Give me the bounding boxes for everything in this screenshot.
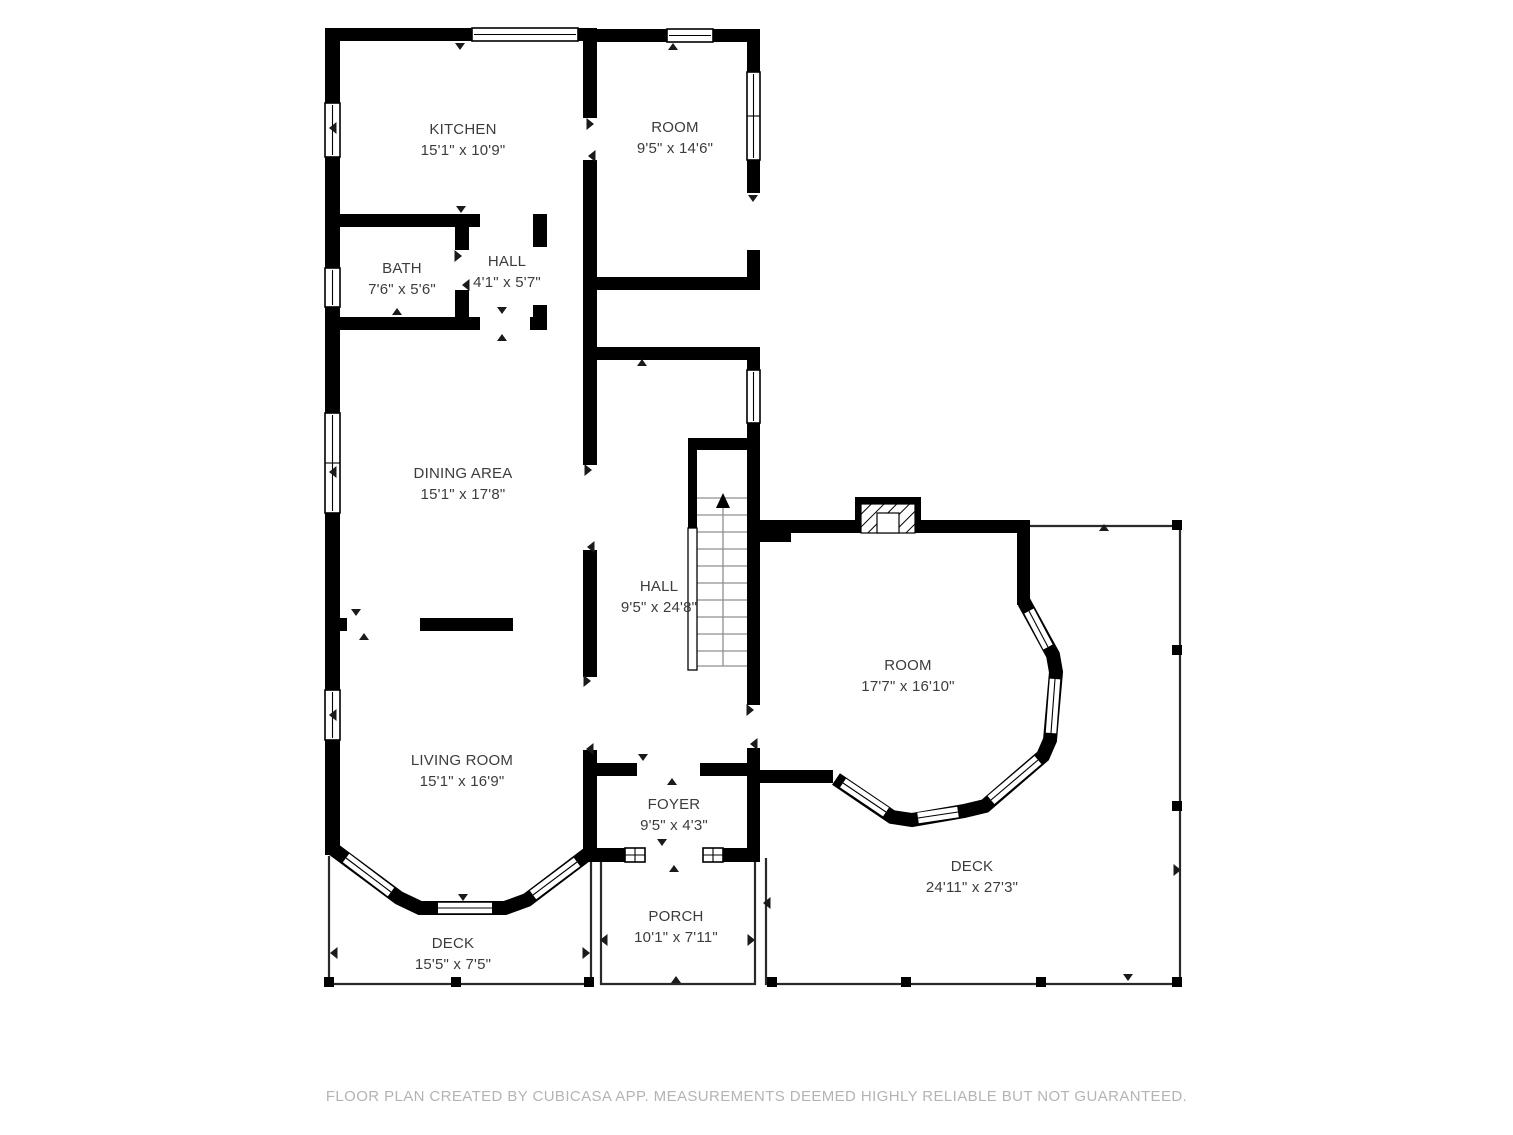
- wall-segment: [747, 347, 760, 370]
- room-dimensions: 9'5" x 14'6": [637, 138, 713, 159]
- room-name: ROOM: [637, 117, 713, 138]
- room-name: HALL: [473, 251, 541, 272]
- footer-disclaimer: FLOOR PLAN CREATED BY CUBICASA APP. MEAS…: [0, 1088, 1513, 1105]
- window: [747, 72, 760, 160]
- room-name: DECK: [415, 933, 491, 954]
- room-label-foyer: FOYER 9'5" x 4'3": [640, 794, 708, 836]
- room-name: ROOM: [861, 655, 954, 676]
- wall-segment: [758, 533, 791, 542]
- wall-segment: [688, 438, 697, 530]
- window: [703, 848, 723, 862]
- room-label-bath: BATH 7'6" x 5'6": [368, 258, 436, 300]
- wall-segment: [597, 763, 637, 776]
- room-dimensions: 9'5" x 24'8": [621, 597, 697, 618]
- stairs-up-arrow-icon: [716, 493, 730, 508]
- wall-segment: [921, 520, 1020, 533]
- window: [325, 268, 340, 307]
- wall-segment: [455, 214, 469, 250]
- room-label-living-room: LIVING ROOM 15'1" x 16'9": [411, 750, 513, 792]
- room-dimensions: 15'5" x 7'5": [415, 954, 491, 975]
- room-name: KITCHEN: [421, 119, 506, 140]
- wall-segment: [583, 35, 597, 118]
- wall-segment: [747, 520, 855, 533]
- deck-right-outline: [766, 526, 1180, 984]
- room-name: LIVING ROOM: [411, 750, 513, 771]
- wall-segment: [583, 750, 597, 862]
- wall-segment: [583, 160, 597, 465]
- room-name: FOYER: [640, 794, 708, 815]
- room-label-deck-left: DECK 15'5" x 7'5": [415, 933, 491, 975]
- wall-segment: [597, 277, 760, 290]
- room-name: HALL: [621, 576, 697, 597]
- room-dimensions: 15'1" x 16'9": [411, 771, 513, 792]
- window: [472, 28, 578, 41]
- floor-plan-drawing: [0, 0, 1513, 1135]
- wall-segment: [747, 29, 760, 72]
- room-dimensions: 4'1" x 5'7": [473, 272, 541, 293]
- fireplace: [855, 497, 921, 533]
- room-dimensions: 15'1" x 10'9": [421, 140, 506, 161]
- wall-segment: [325, 618, 347, 631]
- room-dimensions: 7'6" x 5'6": [368, 279, 436, 300]
- room-label-kitchen: KITCHEN 15'1" x 10'9": [421, 119, 506, 161]
- wall-segment: [597, 29, 667, 42]
- room-name: BATH: [368, 258, 436, 279]
- room-label-room-right: ROOM 17'7" x 16'10": [861, 655, 954, 697]
- wall-segment: [583, 550, 597, 677]
- wall-segment: [533, 214, 547, 247]
- living-room-bay: [333, 849, 589, 908]
- wall-segment: [420, 618, 513, 631]
- wall-segment: [723, 848, 760, 862]
- floor-plan-canvas: KITCHEN 15'1" x 10'9" ROOM 9'5" x 14'6" …: [0, 0, 1513, 1135]
- room-name: DINING AREA: [414, 463, 513, 484]
- wall-segment: [747, 423, 760, 705]
- room-name: DECK: [926, 856, 1018, 877]
- room-label-dining-area: DINING AREA 15'1" x 17'8": [414, 463, 513, 505]
- room-dimensions: 15'1" x 17'8": [414, 484, 513, 505]
- room-label-deck-right: DECK 24'11" x 27'3": [926, 856, 1018, 898]
- wall-segment: [325, 317, 480, 330]
- wall-segment: [1017, 520, 1030, 605]
- room-label-room-upper: ROOM 9'5" x 14'6": [637, 117, 713, 159]
- window: [325, 413, 340, 513]
- window: [667, 29, 713, 42]
- room-name: PORCH: [634, 906, 718, 927]
- wall-segment: [597, 347, 760, 360]
- window: [625, 848, 645, 862]
- window: [747, 370, 760, 423]
- wall-segment: [747, 160, 760, 193]
- room-label-hall-small: HALL 4'1" x 5'7": [473, 251, 541, 293]
- bay-window: [843, 611, 1055, 818]
- room-right-bay: [836, 602, 1056, 820]
- wall-segment: [747, 770, 833, 783]
- room-dimensions: 10'1" x 7'11": [634, 927, 718, 948]
- room-dimensions: 9'5" x 4'3": [640, 815, 708, 836]
- wall-segment: [530, 317, 547, 330]
- room-label-hall-main: HALL 9'5" x 24'8": [621, 576, 697, 618]
- room-label-porch: PORCH 10'1" x 7'11": [634, 906, 718, 948]
- room-dimensions: 17'7" x 16'10": [861, 676, 954, 697]
- wall-segment: [688, 438, 753, 450]
- room-dimensions: 24'11" x 27'3": [926, 877, 1018, 898]
- bay-window: [346, 858, 577, 908]
- wall-segment: [325, 28, 472, 41]
